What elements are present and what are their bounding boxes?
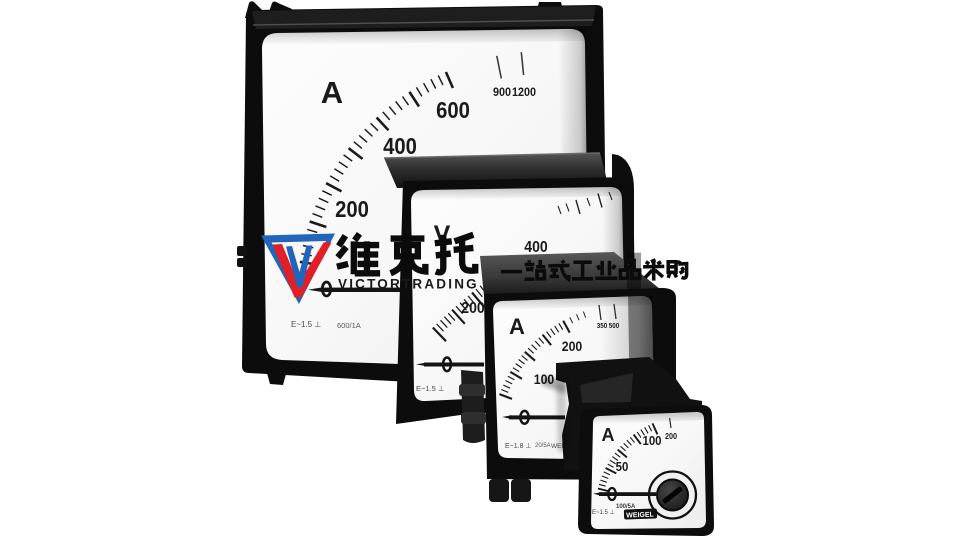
svg-text:600/1A: 600/1A xyxy=(337,321,361,330)
svg-text:E~1.8 ⊥: E~1.8 ⊥ xyxy=(505,443,532,450)
svg-text:400: 400 xyxy=(383,133,417,160)
svg-text:400: 400 xyxy=(524,238,547,256)
svg-text:200: 200 xyxy=(665,432,677,441)
svg-text:350: 350 xyxy=(597,323,608,330)
svg-text:200: 200 xyxy=(562,338,583,354)
svg-text:A: A xyxy=(602,425,615,445)
svg-text:A: A xyxy=(321,75,343,110)
svg-text:VICTORTRADING: VICTORTRADING xyxy=(338,277,479,292)
svg-text:E~1.5 ⊥: E~1.5 ⊥ xyxy=(291,320,321,329)
svg-text:500: 500 xyxy=(609,323,620,330)
svg-text:WEIGEL: WEIGEL xyxy=(626,511,655,519)
svg-text:50: 50 xyxy=(616,459,629,474)
svg-text:E~1.5 ⊥: E~1.5 ⊥ xyxy=(416,384,445,393)
svg-text:600: 600 xyxy=(436,97,470,124)
svg-text:100/5A: 100/5A xyxy=(616,504,636,510)
svg-text:200: 200 xyxy=(335,196,369,223)
svg-text:20/5A: 20/5A xyxy=(535,443,551,449)
svg-text:200: 200 xyxy=(461,299,484,317)
svg-text:E~1.5 ⊥: E~1.5 ⊥ xyxy=(592,509,615,516)
svg-text:100: 100 xyxy=(642,433,661,448)
svg-text:900: 900 xyxy=(493,87,511,100)
svg-text:1200: 1200 xyxy=(512,87,536,100)
svg-text:A: A xyxy=(509,314,525,339)
